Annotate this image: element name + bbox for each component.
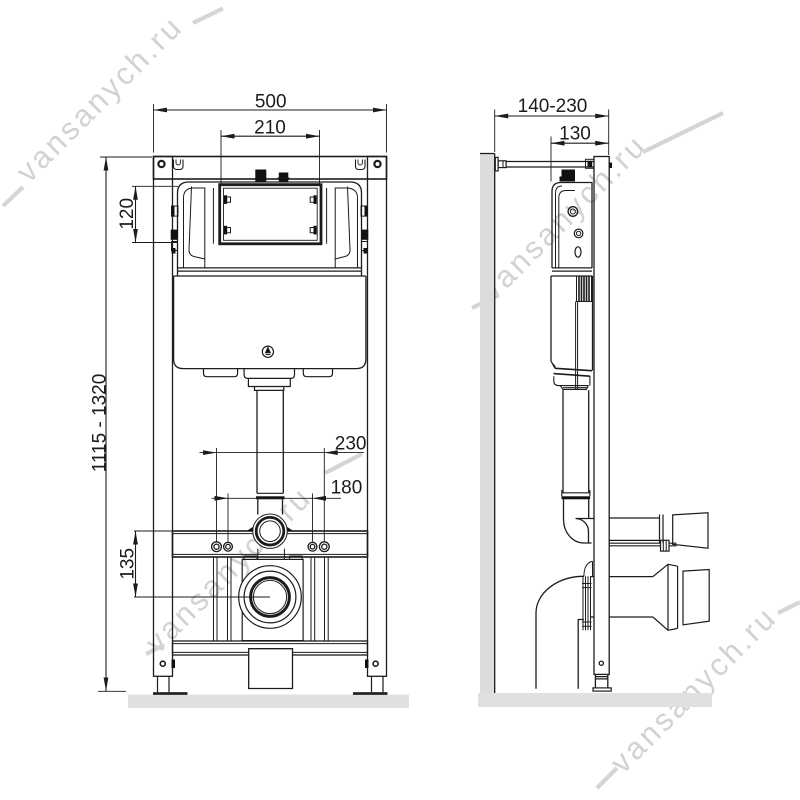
svg-text:135: 135 <box>118 548 139 580</box>
svg-text:210: 210 <box>254 118 286 139</box>
svg-text:180: 180 <box>331 478 363 499</box>
svg-text:140-230: 140-230 <box>518 96 588 117</box>
svg-text:120: 120 <box>117 198 138 230</box>
svg-text:1115 - 1320: 1115 - 1320 <box>89 374 110 473</box>
svg-text:130: 130 <box>559 124 591 145</box>
svg-text:230: 230 <box>335 433 367 454</box>
svg-text:500: 500 <box>255 92 287 113</box>
